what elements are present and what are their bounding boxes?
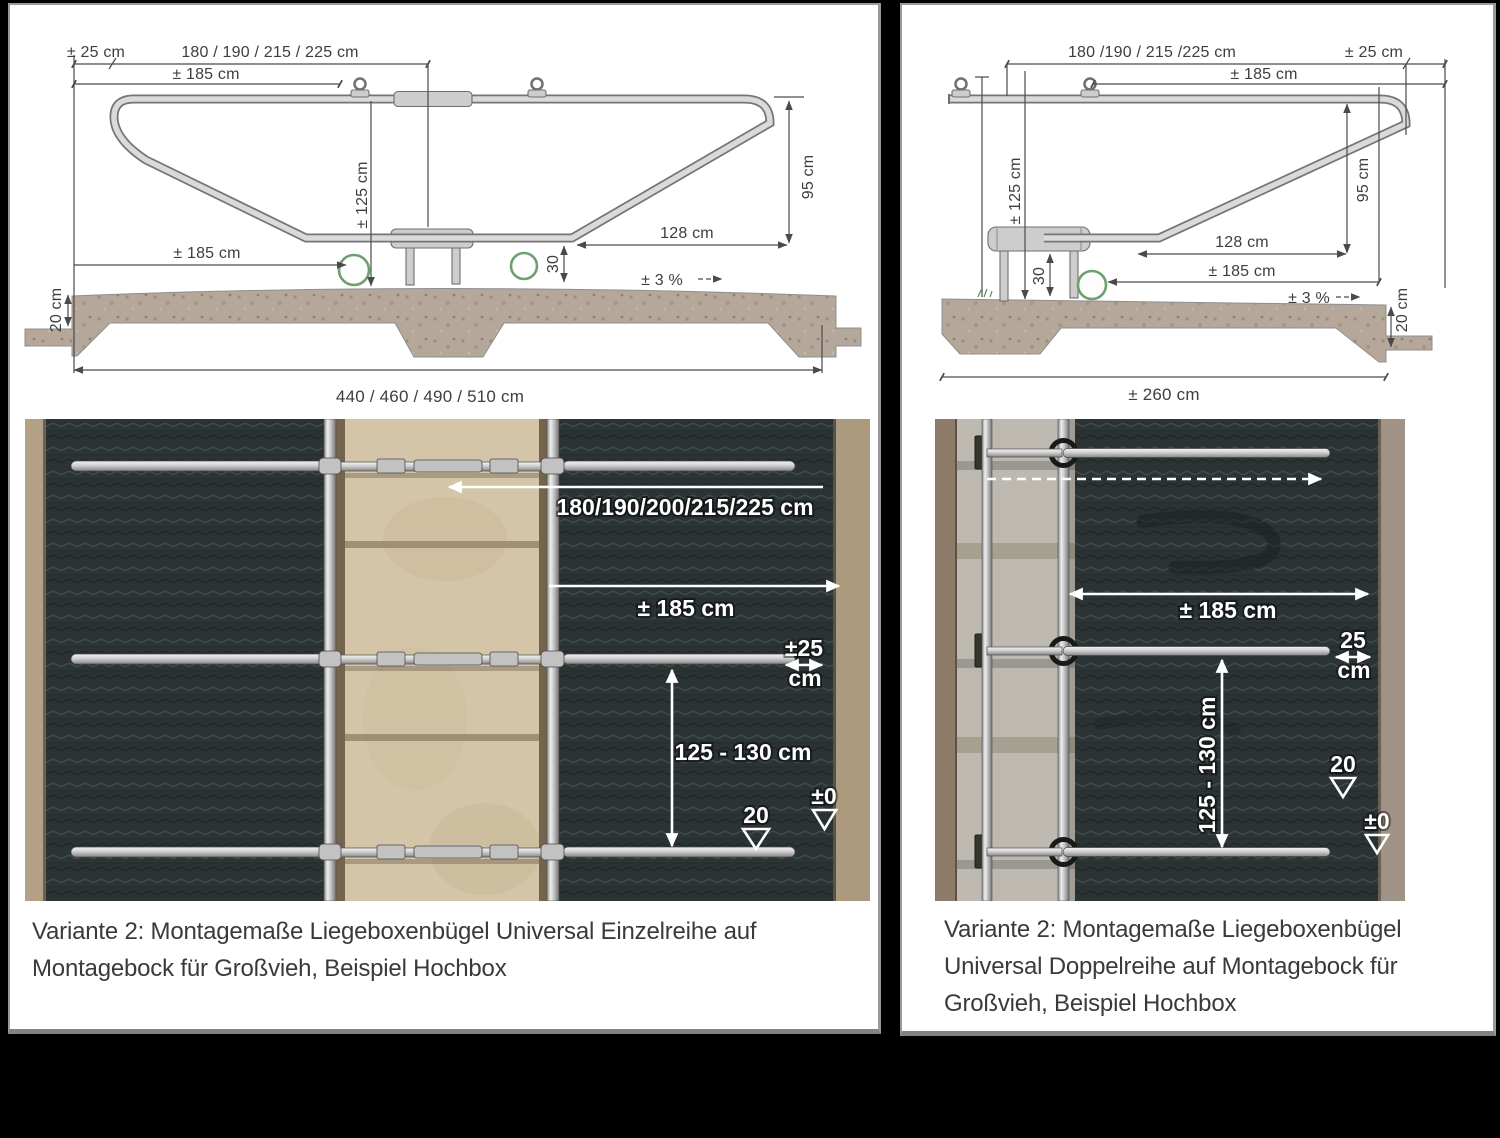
dim-label: ± 25 cm — [67, 44, 125, 61]
dim-label: cm — [788, 665, 821, 691]
dim-label: ± 3 % — [641, 272, 683, 289]
dim-label: cm — [1337, 657, 1370, 683]
dim-label: 95 cm — [1355, 158, 1372, 203]
dim-label: ± 125 cm — [354, 161, 371, 228]
cubicle-bracket — [114, 79, 770, 239]
dim-label: 125 - 130 cm — [675, 739, 812, 765]
dim-label: ± 185 cm — [1230, 66, 1297, 83]
dim-label: 180 / 190 / 215 / 225 cm — [181, 44, 358, 61]
dim-label: 180 /190 / 215 /225 cm — [1068, 44, 1236, 61]
panel-doppelreihe: 180 /190 / 215 /225 cm ± 25 cm ± 185 cm … — [900, 3, 1496, 1036]
dim-label: ±0 — [1364, 808, 1389, 834]
dim-label: 440 / 460 / 490 / 510 cm — [336, 387, 524, 406]
dim-label: 20 — [743, 802, 769, 828]
caption-line: Universal Doppelreihe auf Montagebock fü… — [944, 948, 1401, 985]
dim-label: 30 — [1031, 267, 1048, 285]
caption-einzelreihe: Variante 2: Montagemaße Liegeboxenbügel … — [32, 913, 756, 987]
dim-label: ±25 — [785, 635, 823, 661]
dim-label: ± 185 cm — [1208, 263, 1275, 280]
grass-tuft — [978, 289, 992, 297]
caption-line: Großvieh, Beispiel Hochbox — [944, 985, 1401, 1022]
rail-sleeve — [394, 92, 472, 107]
dim-label: ± 25 cm — [1345, 44, 1403, 61]
dim-label: 95 cm — [800, 155, 817, 200]
dim-label: ±0 — [811, 783, 836, 809]
caption-line: Montagebock für Großvieh, Beispiel Hochb… — [32, 950, 756, 987]
dim-label: ± 3 % — [1288, 290, 1330, 307]
dim-label: 25 — [1340, 627, 1366, 653]
dim-label: 180/190/200/215/225 cm — [556, 494, 813, 520]
page: ± 25 cm 180 / 190 / 215 / 225 cm ± 185 c… — [0, 0, 1500, 1138]
lifting-eye — [351, 79, 369, 98]
dim-label: 128 cm — [1215, 234, 1269, 251]
curb-strip-left — [25, 419, 45, 901]
concrete-slab — [942, 299, 1432, 362]
supply-pipe-section — [339, 255, 369, 285]
top-view-photo-einzelreihe: 180/190/200/215/225 cm ± 185 cm ±25 cm 1… — [25, 419, 870, 901]
vertical-post — [982, 419, 992, 901]
dim-label: ± 260 cm — [1128, 385, 1199, 404]
lifting-eye — [952, 79, 970, 98]
dim-label: 20 — [1330, 751, 1356, 777]
caption-line: Variante 2: Montagemaße Liegeboxenbügel … — [32, 913, 756, 950]
side-view-drawing-einzelreihe: ± 25 cm 180 / 190 / 215 / 225 cm ± 185 c… — [10, 5, 879, 420]
dim-label: ± 125 cm — [1007, 157, 1024, 224]
dim-label: 20 cm — [1394, 288, 1411, 333]
panel-einzelreihe: ± 25 cm 180 / 190 / 215 / 225 cm ± 185 c… — [8, 3, 881, 1034]
supply-pipe-section — [1078, 271, 1106, 299]
lifting-eye — [1081, 79, 1099, 98]
dim-label: ± 185 cm — [1179, 597, 1276, 623]
dim-label: 30 — [545, 255, 562, 273]
lifting-eye — [528, 79, 546, 98]
caption-line: Variante 2: Montagemaße Liegeboxenbügel — [944, 911, 1401, 948]
dim-label: ± 185 cm — [637, 595, 734, 621]
curb-strip-right — [835, 419, 870, 901]
curb-strip-left — [935, 419, 957, 901]
dim-label: 125 - 130 cm — [1194, 697, 1220, 834]
concrete-slab — [25, 289, 861, 358]
supply-pipe-section — [511, 253, 537, 279]
dim-label: ± 185 cm — [173, 245, 240, 262]
caption-doppelreihe: Variante 2: Montagemaße Liegeboxenbügel … — [944, 911, 1401, 1022]
top-view-photo-doppelreihe: ± 185 cm 25 cm 125 - 130 cm 20 ±0 — [935, 419, 1405, 901]
dim-label: ± 185 cm — [172, 66, 239, 83]
dim-label: 128 cm — [660, 225, 714, 242]
vertical-post — [1058, 419, 1069, 901]
side-view-drawing-doppelreihe: 180 /190 / 215 /225 cm ± 25 cm ± 185 cm … — [902, 5, 1494, 420]
dim-label: 20 cm — [48, 288, 65, 333]
